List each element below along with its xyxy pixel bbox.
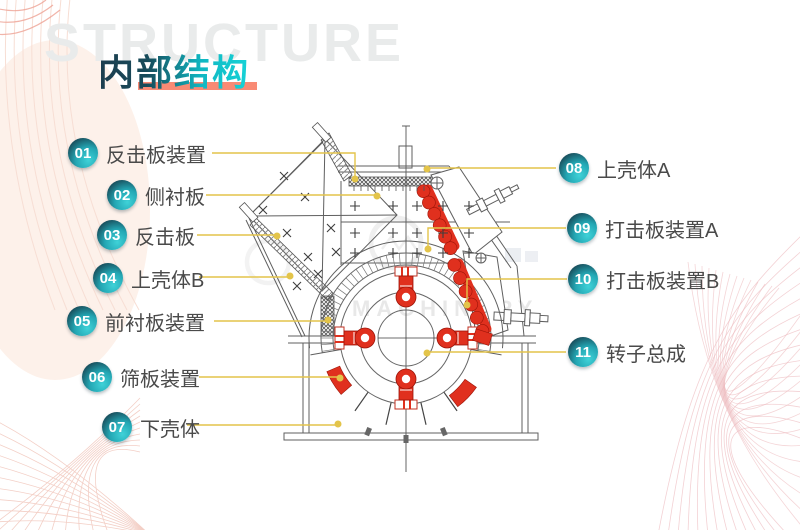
impact-plate-teeth <box>417 185 492 346</box>
label-07-text: 下壳体 <box>140 413 200 442</box>
blow-bars <box>335 267 477 409</box>
impact-rack-brackets <box>431 167 548 341</box>
badge-02: 02 <box>107 180 137 210</box>
page-title: 内部结构 <box>98 44 250 96</box>
liner-hatched-strips <box>239 123 431 336</box>
label-09-text: 打击板装置A <box>605 214 718 243</box>
badge-05: 05 <box>67 306 97 336</box>
label-11-rotor-assembly: 11 转子总成 <box>568 337 686 367</box>
badge-03: 03 <box>97 220 127 250</box>
badge-07: 07 <box>102 412 132 442</box>
badge-10: 10 <box>568 264 598 294</box>
label-10-striking-plate-device-b: 10 打击板装置B <box>568 264 719 294</box>
page-title-text: 内部结构 <box>98 44 250 96</box>
screen-grate <box>309 241 503 443</box>
label-01-text: 反击板装置 <box>106 139 206 168</box>
badge-04: 04 <box>93 263 123 293</box>
rotor-assembly <box>340 272 472 404</box>
label-03-text: 反击板 <box>135 221 195 250</box>
label-11-text: 转子总成 <box>606 338 686 367</box>
label-04-text: 上壳体B <box>131 264 204 293</box>
faint-brand-watermark: MACHINERY <box>352 296 538 321</box>
label-05-text: 前衬板装置 <box>105 307 205 336</box>
badge-11: 11 <box>568 337 598 367</box>
label-02-text: 侧衬板 <box>145 181 205 210</box>
label-03-impact-plate: 03 反击板 <box>97 220 195 250</box>
faint-logo-watermark: MACHINERY <box>247 218 538 321</box>
label-02-side-liner: 02 侧衬板 <box>107 180 205 210</box>
label-04-upper-shell-b: 04 上壳体B <box>93 263 204 293</box>
label-08-upper-shell-a: 08 上壳体A <box>559 153 670 183</box>
label-01-impact-plate-device: 01 反击板装置 <box>68 138 206 168</box>
label-10-text: 打击板装置B <box>606 265 719 294</box>
badge-09: 09 <box>567 213 597 243</box>
label-06-text: 筛板装置 <box>120 363 200 392</box>
label-leader-lines <box>187 153 567 428</box>
structure-infographic: STRUCTURE MACHINERY <box>0 0 800 530</box>
label-07-lower-shell: 07 下壳体 <box>102 412 200 442</box>
badge-01: 01 <box>68 138 98 168</box>
label-09-striking-plate-device-a: 09 打击板装置A <box>567 213 718 243</box>
label-05-front-liner-device: 05 前衬板装置 <box>67 306 205 336</box>
badge-06: 06 <box>82 362 112 392</box>
panel-markings <box>259 172 474 290</box>
label-06-screen-plate-device: 06 筛板装置 <box>82 362 200 392</box>
badge-08: 08 <box>559 153 589 183</box>
label-08-text: 上壳体A <box>597 154 670 183</box>
housing-outline <box>246 126 538 472</box>
